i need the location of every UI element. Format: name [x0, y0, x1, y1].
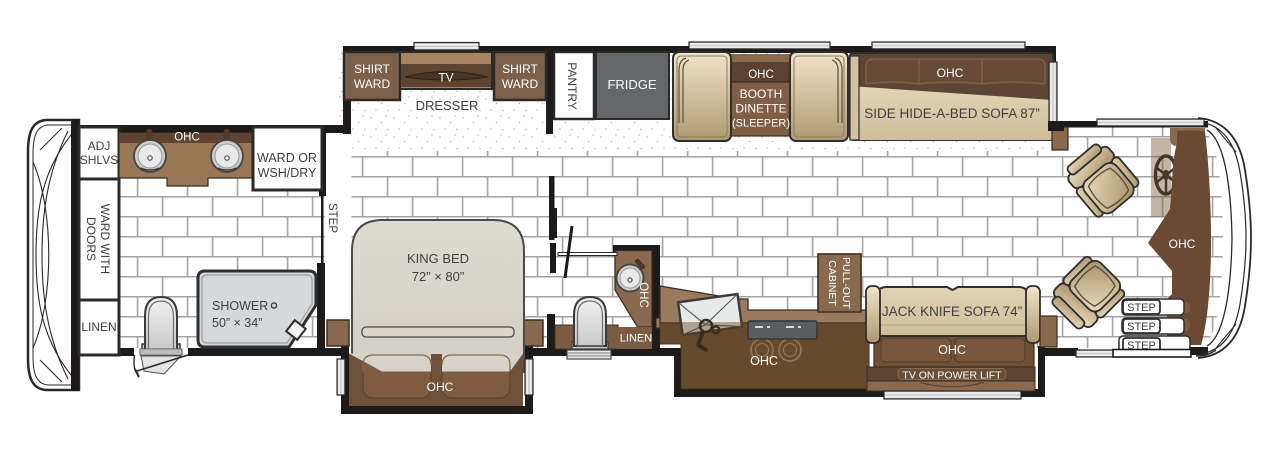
svg-text:TV ON POWER LIFT: TV ON POWER LIFT	[902, 370, 1002, 382]
svg-text:CABINET: CABINET	[826, 260, 838, 306]
svg-text:SHLVS: SHLVS	[80, 153, 118, 167]
svg-text:LINEN: LINEN	[81, 320, 116, 334]
svg-text:SHIRT: SHIRT	[502, 62, 538, 76]
svg-text:SIDE HIDE-A-BED SOFA 87”: SIDE HIDE-A-BED SOFA 87”	[864, 106, 1040, 121]
svg-text:DOORS: DOORS	[84, 217, 98, 261]
svg-text:50” × 34”: 50” × 34”	[212, 316, 262, 330]
svg-text:TV: TV	[438, 71, 453, 85]
svg-text:STEP: STEP	[326, 203, 338, 233]
svg-text:OHC: OHC	[748, 69, 774, 81]
svg-text:FRIDGE: FRIDGE	[607, 77, 656, 92]
svg-text:KING BED: KING BED	[407, 251, 469, 266]
svg-text:OHC: OHC	[174, 132, 200, 144]
svg-text:OHC: OHC	[637, 282, 649, 308]
svg-text:SHIRT: SHIRT	[354, 62, 390, 76]
svg-text:DINETTE: DINETTE	[735, 102, 786, 116]
svg-text:72” × 80”: 72” × 80”	[412, 269, 464, 284]
svg-text:DRESSER: DRESSER	[416, 98, 479, 113]
svg-text:OHC: OHC	[1169, 237, 1196, 251]
svg-text:LINEN: LINEN	[620, 333, 652, 345]
svg-text:PANTRY: PANTRY	[565, 62, 579, 110]
svg-text:OHC: OHC	[750, 354, 778, 368]
svg-text:SHOWER: SHOWER	[212, 299, 268, 313]
svg-text:WARD: WARD	[502, 77, 539, 91]
svg-text:WARD WITH: WARD WITH	[98, 204, 112, 274]
svg-text:WARD: WARD	[354, 77, 391, 91]
svg-text:OHC: OHC	[938, 343, 966, 357]
svg-text:STEP: STEP	[1127, 321, 1156, 333]
svg-text:STEP: STEP	[1127, 302, 1156, 314]
svg-text:OHC: OHC	[937, 66, 964, 80]
svg-text:OHC: OHC	[427, 380, 454, 394]
svg-text:(SLEEPER): (SLEEPER)	[732, 118, 790, 130]
svg-text:PULL-OUT: PULL-OUT	[840, 257, 852, 310]
svg-text:ADJ: ADJ	[88, 139, 111, 153]
svg-text:BOOTH: BOOTH	[740, 87, 783, 101]
svg-text:JACK KNIFE SOFA 74”: JACK KNIFE SOFA 74”	[882, 304, 1022, 319]
svg-text:WSH/DRY: WSH/DRY	[258, 166, 317, 180]
svg-text:WARD OR: WARD OR	[257, 151, 317, 165]
